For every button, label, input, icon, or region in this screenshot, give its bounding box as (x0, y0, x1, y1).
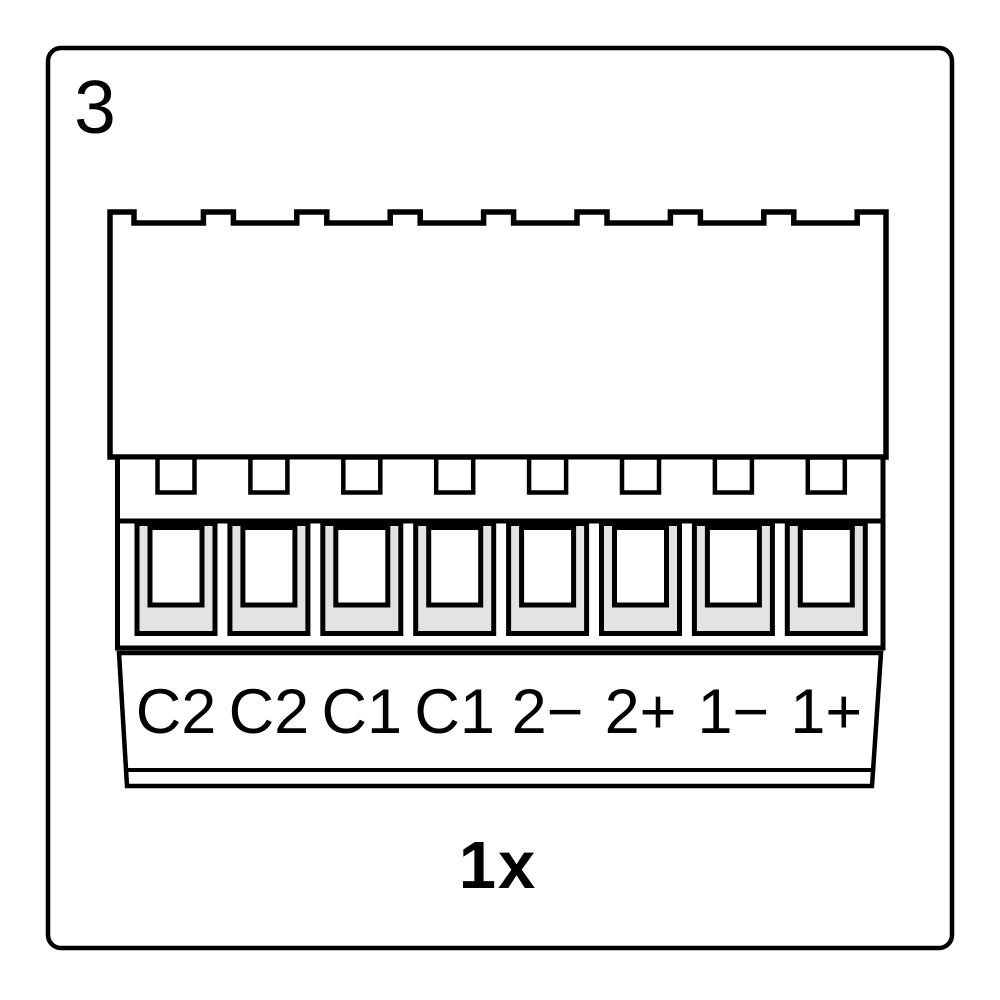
terminal-opening (429, 528, 481, 606)
terminal-opening (150, 528, 202, 606)
step-number: 3 (74, 65, 116, 149)
pin-label: C1 (414, 677, 495, 747)
latch-slot (808, 458, 845, 493)
latch-slot (622, 458, 659, 493)
latch-slot (250, 458, 287, 493)
pin-label: 2+ (605, 677, 677, 747)
pin-label: 1+ (790, 677, 862, 747)
latch-strip (118, 457, 884, 521)
instruction-step-panel: 3 C2C2C1C12−2+1−1+ 1x (0, 0, 1000, 1000)
pin-label: C1 (322, 677, 403, 747)
latch-slot (529, 458, 566, 493)
latch-slot (436, 458, 473, 493)
terminal-opening (615, 528, 667, 606)
connector-housing (110, 212, 886, 457)
pin-label: 2− (512, 677, 584, 747)
latch-slot (715, 458, 752, 493)
terminal-opening (800, 528, 852, 606)
pin-label: C2 (136, 677, 217, 747)
pin-label: 1− (697, 677, 769, 747)
terminal-opening (707, 528, 759, 606)
terminal-opening (336, 528, 388, 606)
quantity-label: 1x (459, 828, 538, 903)
connector-diagram: 3 C2C2C1C12−2+1−1+ 1x (0, 0, 1000, 1000)
terminal-opening (522, 528, 574, 606)
latch-slot (158, 458, 195, 493)
pin-label: C2 (229, 677, 310, 747)
latch-slot (343, 458, 380, 493)
terminal-opening (243, 528, 295, 606)
